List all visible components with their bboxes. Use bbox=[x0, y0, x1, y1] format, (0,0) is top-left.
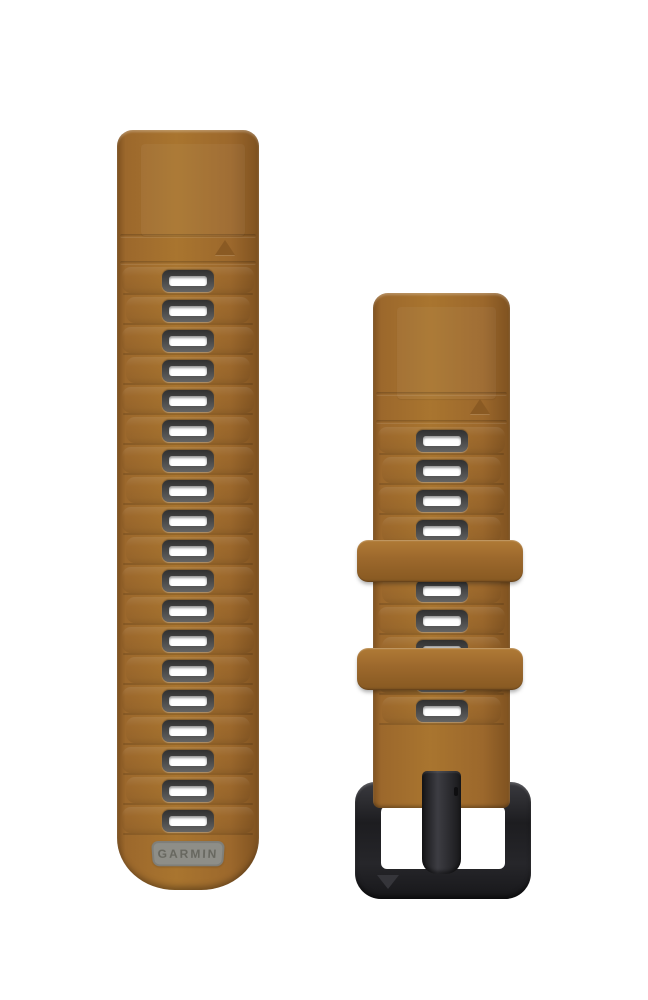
adjustment-hole bbox=[162, 720, 214, 742]
adjustment-hole-opening bbox=[423, 466, 461, 476]
keeper-loop-1 bbox=[357, 540, 523, 582]
band-slot-row bbox=[117, 476, 259, 506]
groove-line bbox=[120, 234, 256, 238]
keeper-loop-2 bbox=[357, 648, 523, 690]
band-slot-row bbox=[117, 596, 259, 626]
adjustment-hole bbox=[162, 360, 214, 382]
adjustment-hole-opening bbox=[169, 546, 207, 556]
band-slot-row bbox=[373, 456, 510, 486]
adjustment-hole-opening bbox=[169, 636, 207, 646]
adjustment-hole-opening bbox=[169, 516, 207, 526]
adjustment-hole-opening bbox=[169, 576, 207, 586]
groove-line bbox=[120, 261, 256, 265]
quickfit-attach-area bbox=[397, 307, 496, 399]
adjustment-hole bbox=[162, 690, 214, 712]
adjustment-hole bbox=[162, 300, 214, 322]
band-slot-row bbox=[117, 356, 259, 386]
band-slot-row bbox=[117, 776, 259, 806]
adjustment-hole-opening bbox=[169, 486, 207, 496]
triangle-up-icon bbox=[470, 399, 490, 414]
adjustment-hole bbox=[162, 480, 214, 502]
band-slot-row bbox=[117, 326, 259, 356]
adjustment-hole-opening bbox=[169, 666, 207, 676]
adjustment-hole bbox=[416, 490, 468, 512]
adjustment-hole bbox=[162, 630, 214, 652]
band-slot-row bbox=[117, 806, 259, 836]
adjustment-hole bbox=[162, 330, 214, 352]
adjustment-hole-opening bbox=[423, 616, 461, 626]
adjustment-hole-opening bbox=[169, 726, 207, 736]
band-slot-row bbox=[373, 426, 510, 456]
band-slot-row bbox=[117, 296, 259, 326]
band-slot-row bbox=[373, 606, 510, 636]
adjustment-hole bbox=[416, 520, 468, 542]
groove-line bbox=[376, 392, 507, 396]
band-slot-row bbox=[373, 486, 510, 516]
adjustment-hole bbox=[416, 610, 468, 632]
adjustment-hole bbox=[162, 270, 214, 292]
strap-holes-piece: GARMIN bbox=[117, 130, 259, 890]
triangle-down-icon bbox=[377, 875, 399, 889]
adjustment-hole bbox=[162, 780, 214, 802]
band-slot-row bbox=[117, 746, 259, 776]
adjustment-hole bbox=[162, 450, 214, 472]
adjustment-hole-opening bbox=[169, 396, 207, 406]
adjustment-hole-opening bbox=[169, 306, 207, 316]
adjustment-hole bbox=[162, 390, 214, 412]
band-slot-row bbox=[117, 656, 259, 686]
adjustment-hole-opening bbox=[169, 276, 207, 286]
band-slot-row bbox=[117, 386, 259, 416]
band-slot-row bbox=[117, 716, 259, 746]
buckle-prong bbox=[422, 771, 461, 874]
adjustment-hole-opening bbox=[169, 426, 207, 436]
adjustment-hole-opening bbox=[423, 526, 461, 536]
band-slot-row bbox=[117, 506, 259, 536]
adjustment-hole-opening bbox=[423, 436, 461, 446]
adjustment-hole-opening bbox=[169, 696, 207, 706]
band-slot-row bbox=[117, 416, 259, 446]
adjustment-hole bbox=[162, 510, 214, 532]
adjustment-hole bbox=[162, 750, 214, 772]
adjustment-hole bbox=[416, 430, 468, 452]
adjustment-hole-opening bbox=[169, 756, 207, 766]
adjustment-hole-opening bbox=[423, 706, 461, 716]
band-slot-row bbox=[117, 446, 259, 476]
band-slot-row bbox=[117, 626, 259, 656]
adjustment-hole bbox=[162, 810, 214, 832]
quickfit-attach-area bbox=[141, 144, 245, 236]
groove-line bbox=[376, 420, 507, 424]
adjustment-hole-opening bbox=[169, 606, 207, 616]
adjustment-hole-opening bbox=[169, 816, 207, 826]
adjustment-hole-opening bbox=[423, 586, 461, 596]
adjustment-hole bbox=[162, 570, 214, 592]
adjustment-hole-opening bbox=[169, 366, 207, 376]
adjustment-hole bbox=[416, 580, 468, 602]
adjustment-hole bbox=[162, 600, 214, 622]
band-slot-row bbox=[117, 266, 259, 296]
band-slot-row bbox=[117, 536, 259, 566]
adjustment-hole-opening bbox=[423, 496, 461, 506]
adjustment-hole bbox=[416, 460, 468, 482]
band-slot-row bbox=[117, 566, 259, 596]
adjustment-hole-opening bbox=[169, 336, 207, 346]
adjustment-hole-opening bbox=[169, 786, 207, 796]
adjustment-hole bbox=[162, 660, 214, 682]
adjustment-hole-opening bbox=[169, 456, 207, 466]
band-slot-row bbox=[117, 686, 259, 716]
product-photo: GARMIN bbox=[0, 0, 648, 1000]
garmin-logo-text: GARMIN bbox=[157, 847, 219, 861]
triangle-up-icon bbox=[215, 240, 235, 255]
adjustment-holes-column bbox=[117, 266, 259, 836]
adjustment-hole bbox=[162, 420, 214, 442]
garmin-logo-patch: GARMIN bbox=[151, 841, 225, 866]
adjustment-hole bbox=[416, 700, 468, 722]
adjustment-hole bbox=[162, 540, 214, 562]
band-slot-row bbox=[373, 696, 510, 726]
